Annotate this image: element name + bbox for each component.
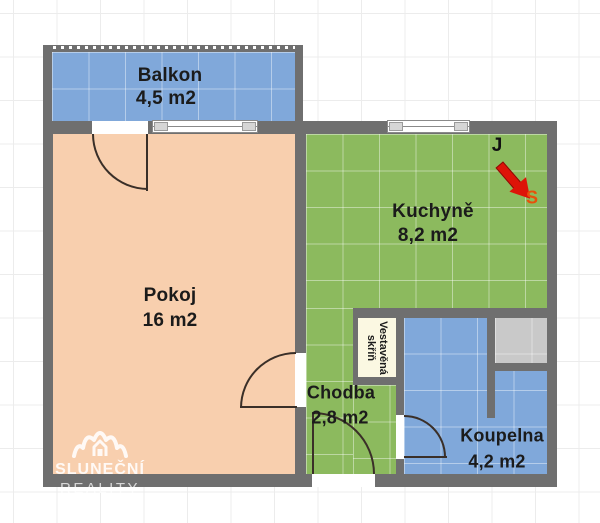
label-balcony-area: 4,5 m2 <box>136 88 196 110</box>
label-pokoj-area: 16 m2 <box>143 310 198 332</box>
wardrobe-label-line1: Vestavěná <box>377 321 389 375</box>
window-end-tab <box>242 122 256 131</box>
wall-right <box>547 121 557 487</box>
wall-shaft-stub <box>487 317 495 418</box>
wall-balcony-left <box>43 45 52 121</box>
label-kitchen-name: Kuchyně <box>392 201 474 223</box>
window-end-tab <box>389 122 403 131</box>
label-bathroom-name: Koupelna <box>460 426 544 447</box>
compass-label-s: S <box>526 188 538 209</box>
wardrobe-label: Vestavěná skříň <box>365 321 389 375</box>
entrance-door-opening <box>312 474 375 487</box>
watermark-line2: REALITY <box>40 480 160 497</box>
window-end-tab <box>154 122 168 131</box>
label-hall-name: Chodba <box>307 383 375 404</box>
floor-plan: Vestavěná skříň Balkon 4,5 m2 Pokoj 16 m… <box>0 0 600 523</box>
shaft-area <box>495 317 547 363</box>
wardrobe-box: Vestavěná skříň <box>358 318 396 377</box>
sun-house-logo-icon <box>69 425 131 459</box>
wall-balcony-right <box>295 45 303 121</box>
balcony-door-opening <box>92 121 148 134</box>
label-kitchen-area: 8,2 m2 <box>398 225 458 247</box>
label-bathroom-area: 4,2 m2 <box>468 452 525 473</box>
pokoj-door-opening <box>295 353 306 407</box>
window-pokoj <box>152 120 258 133</box>
label-pokoj-name: Pokoj <box>144 285 197 307</box>
bathroom-door-opening <box>396 415 404 459</box>
window-end-tab <box>454 122 468 131</box>
agency-watermark: SLUNEČNÍ REALITY <box>40 425 160 497</box>
window-kitchen <box>387 120 470 133</box>
balcony-railing <box>43 45 303 52</box>
compass-label-j: J <box>492 135 503 157</box>
watermark-line1: SLUNEČNÍ <box>40 461 160 479</box>
label-hall-area: 2,8 m2 <box>311 408 368 429</box>
wall-room-divider <box>295 134 306 474</box>
wardrobe-label-line2: skříň <box>365 321 377 375</box>
wall-under-shaft <box>495 363 547 371</box>
label-balcony-name: Balkon <box>138 65 203 87</box>
wall-kitchen-bottom <box>353 308 557 318</box>
